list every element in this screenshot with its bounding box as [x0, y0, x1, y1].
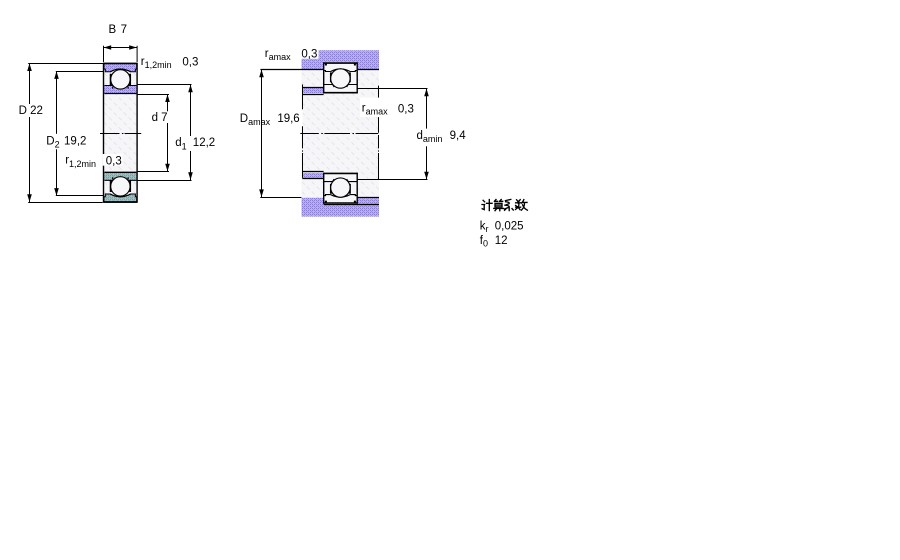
svg-text:r1,2min 0,3: r1,2min 0,3 — [65, 155, 122, 169]
svg-text:r1,2min 0,3: r1,2min 0,3 — [141, 56, 199, 70]
svg-text:f0 12: f0 12 — [480, 235, 508, 249]
svg-text:B 7: B 7 — [109, 24, 128, 36]
svg-text:kr 0,025: kr 0,025 — [480, 220, 524, 234]
svg-text:D 22: D 22 — [19, 105, 43, 117]
svg-text:d 7: d 7 — [152, 112, 168, 124]
svg-text:ramax 0,3: ramax 0,3 — [265, 48, 318, 62]
